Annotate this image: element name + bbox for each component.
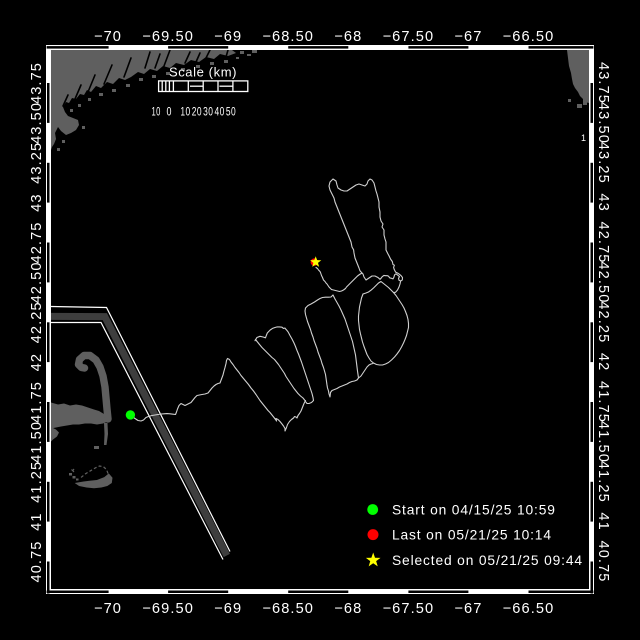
svg-text:0: 0 <box>167 105 172 119</box>
svg-text:41: 41 <box>595 512 611 530</box>
svg-text:−67: −67 <box>454 601 482 617</box>
svg-text:41.50: 41.50 <box>595 421 611 463</box>
svg-text:20: 20 <box>192 105 202 119</box>
svg-text:−67.50: −67.50 <box>383 601 435 617</box>
svg-text:42.75: 42.75 <box>595 221 611 263</box>
svg-text:−67: −67 <box>454 29 482 45</box>
svg-text:43.25: 43.25 <box>29 142 45 184</box>
svg-text:43: 43 <box>29 193 45 211</box>
svg-text:−67.50: −67.50 <box>383 29 435 45</box>
svg-text:−70: −70 <box>94 29 122 45</box>
svg-text:43: 43 <box>595 193 611 211</box>
svg-text:Last on 05/21/25 10:14: Last on 05/21/25 10:14 <box>392 528 552 543</box>
svg-text:−68.50: −68.50 <box>262 601 314 617</box>
svg-text:43.75: 43.75 <box>595 62 611 104</box>
svg-text:40.75: 40.75 <box>29 540 45 582</box>
svg-text:−70: −70 <box>94 601 122 617</box>
svg-text:10: 10 <box>180 105 190 119</box>
svg-text:42: 42 <box>29 353 45 371</box>
svg-text:41.75: 41.75 <box>595 381 611 423</box>
svg-text:41.25: 41.25 <box>29 461 45 503</box>
svg-text:42.25: 42.25 <box>595 301 611 343</box>
svg-text:42.75: 42.75 <box>29 221 45 263</box>
svg-text:43.25: 43.25 <box>595 142 611 184</box>
svg-text:43.75: 43.75 <box>29 62 45 104</box>
svg-text:43.50: 43.50 <box>29 102 45 144</box>
svg-text:−69: −69 <box>214 601 242 617</box>
svg-text:−68: −68 <box>334 29 362 45</box>
svg-text:42.25: 42.25 <box>29 301 45 343</box>
svg-text:30: 30 <box>203 105 213 119</box>
svg-text:41.50: 41.50 <box>29 421 45 463</box>
svg-text:50: 50 <box>226 105 236 119</box>
svg-text:42.50: 42.50 <box>29 261 45 303</box>
svg-text:−68.50: −68.50 <box>262 29 314 45</box>
svg-text:Start on 04/15/25 10:59: Start on 04/15/25 10:59 <box>392 502 556 517</box>
svg-text:42.50: 42.50 <box>595 261 611 303</box>
svg-text:−66.50: −66.50 <box>503 29 555 45</box>
svg-text:−69: −69 <box>214 29 242 45</box>
svg-text:Selected on 05/21/25 09:44: Selected on 05/21/25 09:44 <box>392 553 583 568</box>
svg-text:40: 40 <box>215 105 225 119</box>
svg-text:−69.50: −69.50 <box>142 601 194 617</box>
svg-text:−68: −68 <box>334 601 362 617</box>
svg-text:1: 1 <box>581 133 586 143</box>
svg-text:42: 42 <box>595 353 611 371</box>
svg-text:10: 10 <box>152 105 161 119</box>
svg-text:40.75: 40.75 <box>595 540 611 582</box>
svg-text:43.50: 43.50 <box>595 102 611 144</box>
svg-text:41: 41 <box>29 512 45 530</box>
svg-text:−69.50: −69.50 <box>142 29 194 45</box>
svg-text:41.75: 41.75 <box>29 381 45 423</box>
svg-text:41.25: 41.25 <box>595 461 611 503</box>
svg-text:Scale (km): Scale (km) <box>169 65 237 80</box>
svg-text:−66.50: −66.50 <box>503 601 555 617</box>
